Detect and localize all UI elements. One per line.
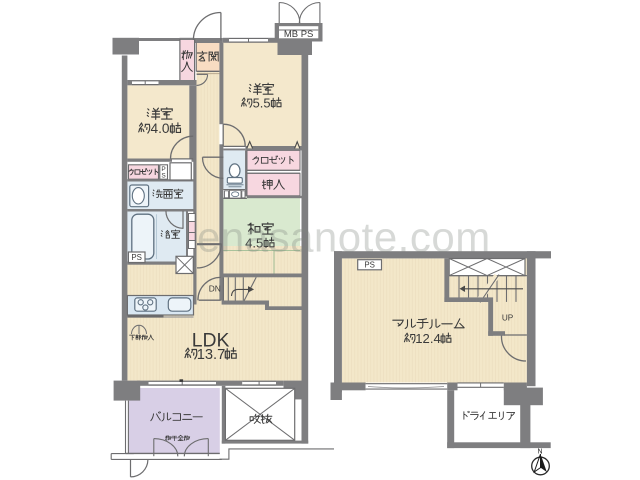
svg-text:12.4: 12.4	[415, 331, 440, 346]
svg-text:5.5: 5.5	[253, 95, 271, 110]
svg-text:UP: UP	[502, 313, 514, 322]
svg-text:DN: DN	[209, 284, 221, 294]
svg-text:4.0: 4.0	[150, 121, 169, 136]
svg-text:enasanote.com: enasanote.com	[197, 214, 491, 261]
svg-text:13.7: 13.7	[197, 347, 226, 363]
svg-text:PS: PS	[131, 253, 142, 262]
svg-text:S: S	[161, 172, 166, 179]
svg-text:N: N	[537, 449, 542, 456]
svg-text:PS: PS	[364, 260, 375, 269]
svg-text:MB PS: MB PS	[284, 29, 314, 40]
